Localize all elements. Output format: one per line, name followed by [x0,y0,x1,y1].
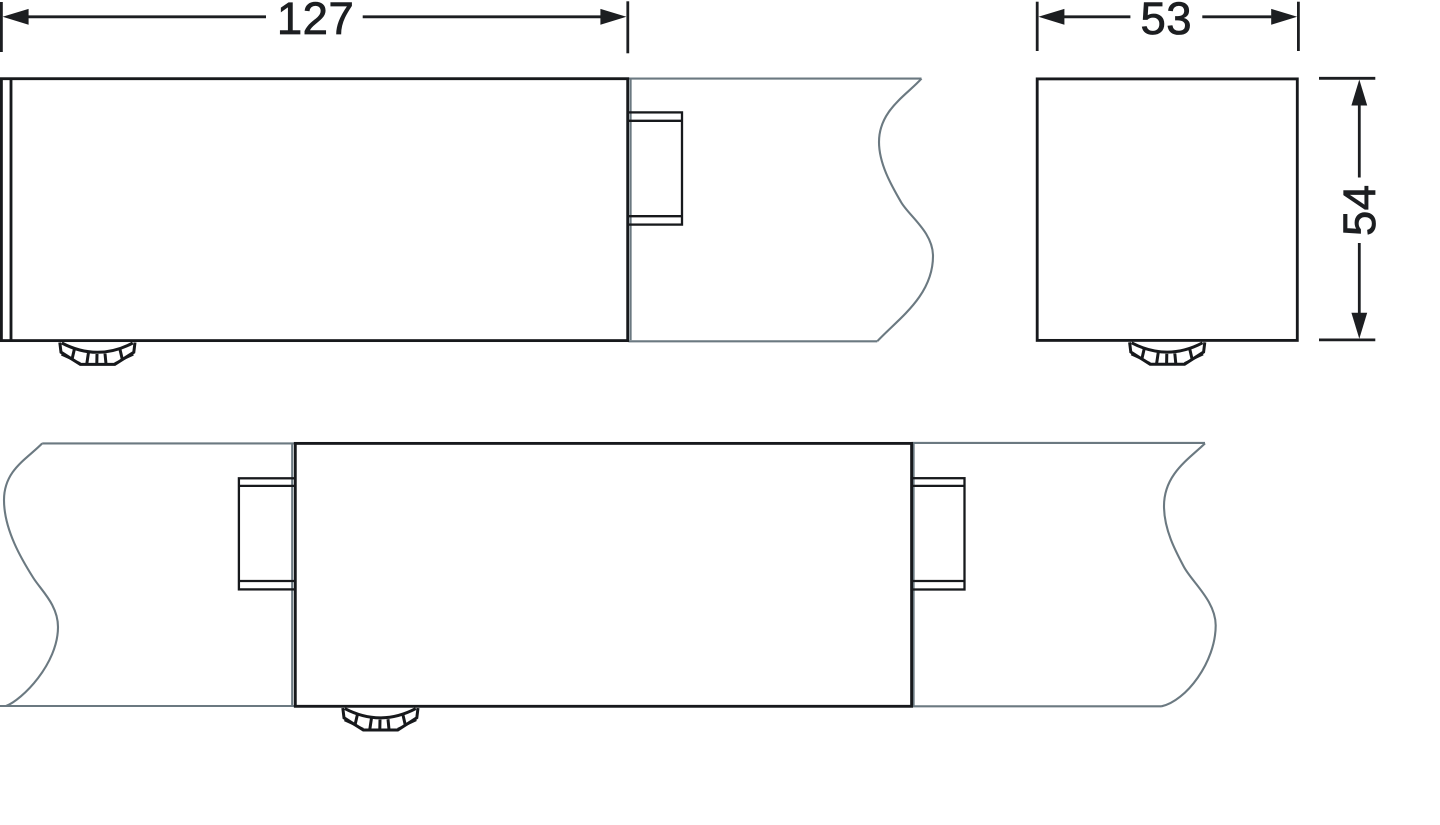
svg-text:54: 54 [1334,184,1385,236]
svg-text:127: 127 [277,0,354,44]
svg-text:53: 53 [1140,0,1192,44]
